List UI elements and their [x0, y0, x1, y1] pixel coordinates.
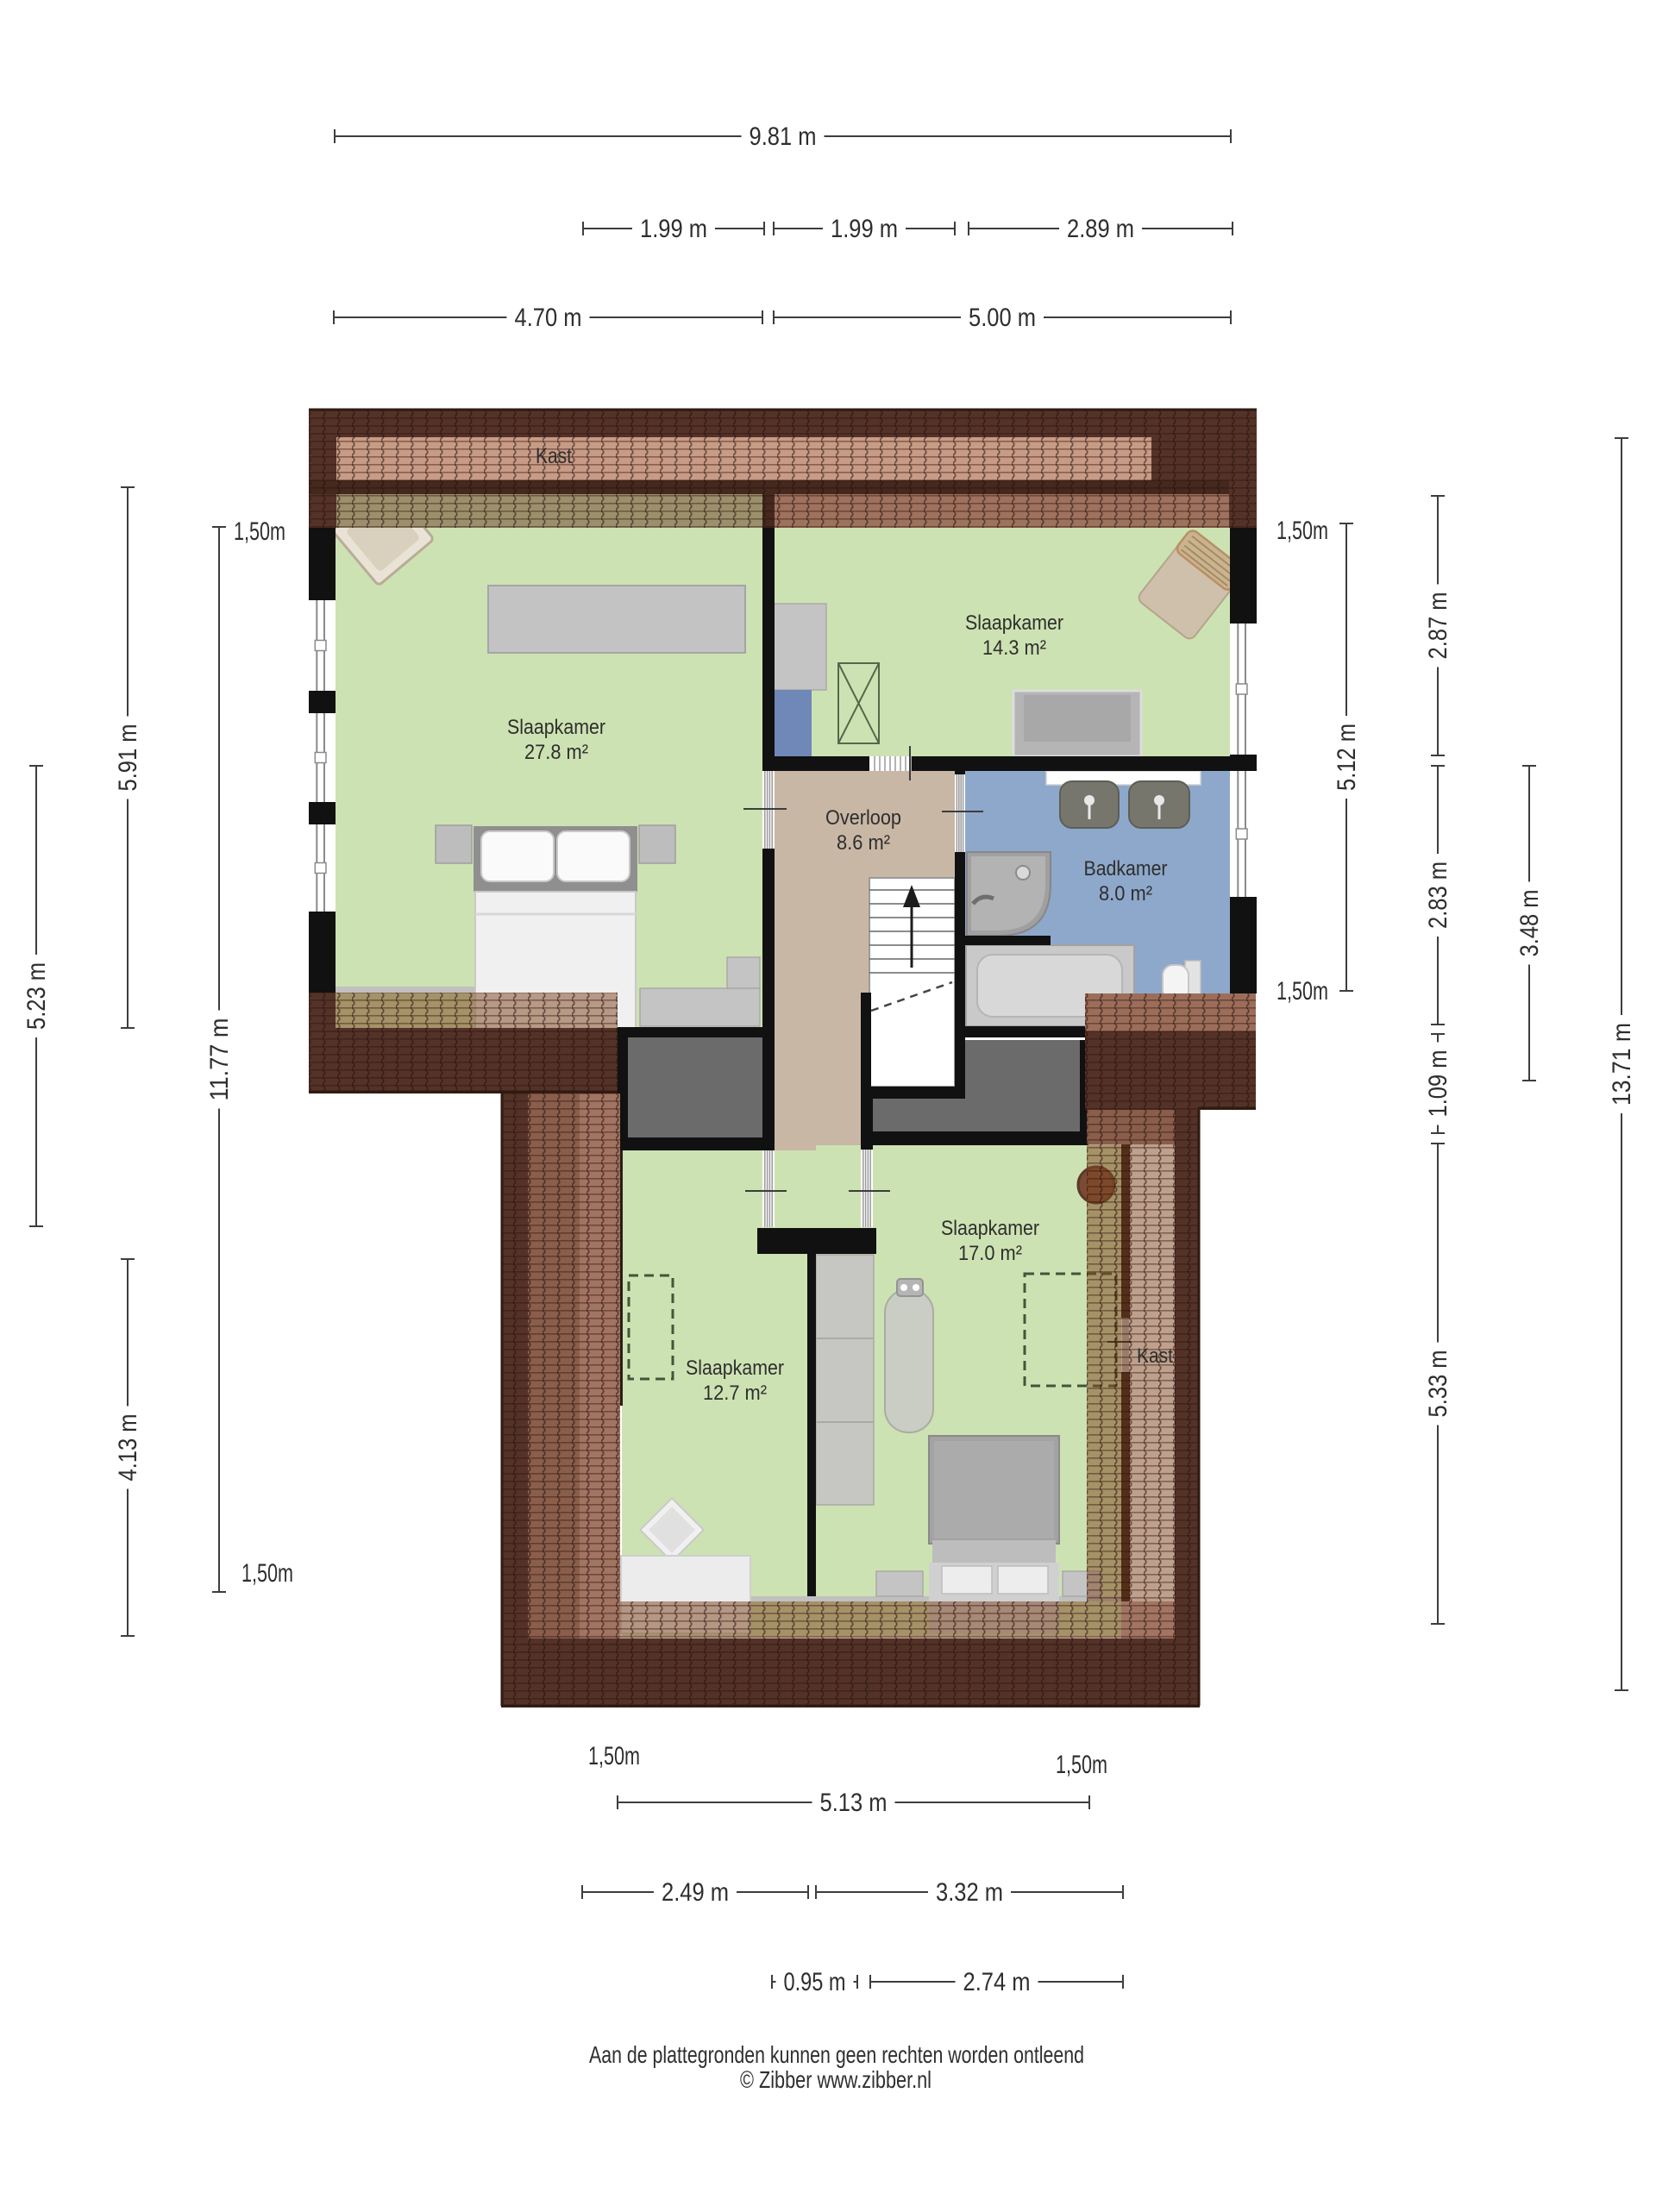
svg-text:1.09 m: 1.09 m: [1424, 1050, 1452, 1118]
svg-text:5.12 m: 5.12 m: [1333, 724, 1361, 791]
svg-text:5.33 m: 5.33 m: [1424, 1350, 1452, 1418]
svg-text:2.87 m: 2.87 m: [1424, 592, 1452, 660]
svg-text:1,50m: 1,50m: [1276, 517, 1328, 545]
svg-text:Slaapkamer: Slaapkamer: [686, 1357, 784, 1380]
svg-text:4.13 m: 4.13 m: [114, 1414, 142, 1482]
svg-text:5.23 m: 5.23 m: [22, 962, 51, 1030]
svg-text:0.95 m: 0.95 m: [784, 1968, 846, 1996]
svg-text:17.0 m²: 17.0 m²: [958, 1242, 1022, 1265]
svg-text:1.99 m: 1.99 m: [831, 215, 898, 243]
svg-text:8.0 m²: 8.0 m²: [1099, 882, 1152, 905]
svg-text:2.49 m: 2.49 m: [662, 1878, 729, 1907]
svg-text:Overloop: Overloop: [825, 806, 901, 830]
svg-text:2.74 m: 2.74 m: [963, 1968, 1031, 1996]
svg-text:3.48 m: 3.48 m: [1515, 890, 1544, 957]
svg-text:Slaapkamer: Slaapkamer: [965, 611, 1063, 635]
svg-text:5.00 m: 5.00 m: [969, 304, 1036, 332]
svg-text:Kast: Kast: [1137, 1344, 1173, 1368]
svg-text:1.99 m: 1.99 m: [640, 215, 707, 243]
svg-text:14.3 m²: 14.3 m²: [982, 636, 1046, 660]
svg-text:11.77 m: 11.77 m: [205, 1018, 234, 1101]
svg-text:Kast: Kast: [536, 444, 572, 468]
svg-text:1,50m: 1,50m: [588, 1742, 640, 1770]
svg-text:9.81 m: 9.81 m: [750, 122, 817, 151]
svg-text:Slaapkamer: Slaapkamer: [507, 716, 605, 739]
svg-text:27.8 m²: 27.8 m²: [524, 741, 588, 764]
svg-text:12.7 m²: 12.7 m²: [703, 1382, 767, 1405]
svg-text:3.32 m: 3.32 m: [936, 1878, 1003, 1907]
svg-text:1,50m: 1,50m: [1276, 977, 1328, 1006]
svg-text:Badkamer: Badkamer: [1084, 857, 1168, 880]
svg-text:1,50m: 1,50m: [1056, 1751, 1107, 1779]
svg-text:1,50m: 1,50m: [241, 1559, 293, 1588]
svg-text:8.6 m²: 8.6 m²: [837, 831, 890, 855]
svg-text:13.71 m: 13.71 m: [1608, 1023, 1636, 1106]
svg-text:Aan de plattegronden kunnen ge: Aan de plattegronden kunnen geen rechten…: [589, 2041, 1084, 2068]
svg-text:5.13 m: 5.13 m: [820, 1789, 888, 1817]
svg-text:© Zibber www.zibber.nl: © Zibber www.zibber.nl: [740, 2066, 931, 2093]
svg-text:1,50m: 1,50m: [234, 517, 285, 546]
svg-text:2.83 m: 2.83 m: [1424, 862, 1452, 929]
svg-text:Slaapkamer: Slaapkamer: [941, 1217, 1039, 1240]
svg-text:4.70 m: 4.70 m: [515, 304, 582, 332]
svg-text:2.89 m: 2.89 m: [1067, 215, 1134, 243]
svg-text:5.91 m: 5.91 m: [114, 724, 142, 792]
